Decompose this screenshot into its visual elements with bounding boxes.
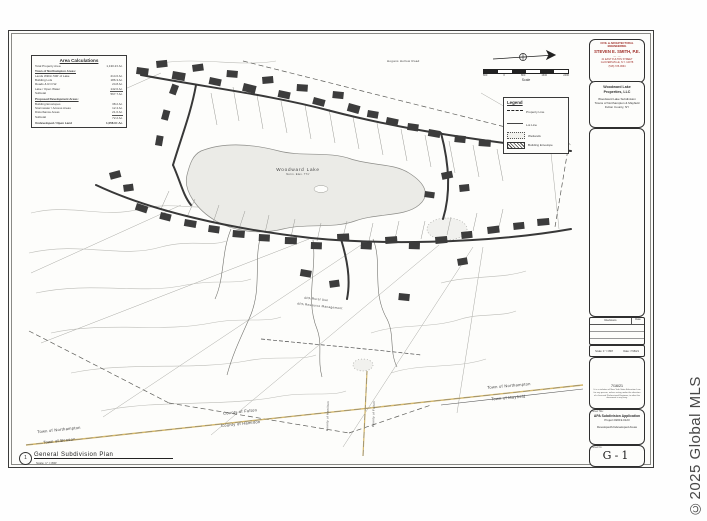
seal-box: 7/16/21 It is a violation of New York St… xyxy=(589,357,645,409)
area-calc-title: Area Calculations xyxy=(35,58,123,63)
notes-panel xyxy=(589,128,645,317)
area-calc-subtotal: Subtotal72.2 Ac. xyxy=(35,115,123,120)
drawing-sheet: Area Calculations Total Property Area1,1… xyxy=(8,30,654,468)
area-calc-total: Undeveloped / Open Land1,058.0± Ac. xyxy=(35,121,123,125)
sheet-title-box: Sheet Title: APA Subdivision Application… xyxy=(589,409,645,445)
lake-elevation-label: Norm. Elev. 771' xyxy=(253,172,343,176)
client-name: Woodward Lake Properties, LLC xyxy=(590,85,644,94)
mls-watermark: ©2025 Global MLS xyxy=(687,345,704,517)
engineer-stamp-box: CIVIL & ARCHITECTURAL ENGINEERING STEVEN… xyxy=(589,39,645,83)
sheet-title-line2: Project #2019-0123 xyxy=(590,418,644,422)
engineer-name: STEVEN E. SMITH, P.E. xyxy=(590,49,644,54)
sheet-title-label: Sheet Title: xyxy=(592,411,644,413)
date-field: Date: 7/16/21 xyxy=(623,350,639,353)
project-name: Woodward Lake Subdivision Towns of North… xyxy=(590,97,644,109)
road-label: Hogans Hollow Road xyxy=(387,59,420,63)
lot-line-symbol xyxy=(507,123,523,130)
property-line-symbol xyxy=(507,110,523,117)
legend-item: Lot Line xyxy=(507,120,565,130)
area-calc-subtotal: Subtotal567.7 Ac. xyxy=(35,91,123,96)
lake-shape xyxy=(186,145,467,371)
scale-bar-label: Scale xyxy=(483,78,569,82)
plan-title: General Subdivision Plan xyxy=(34,452,173,459)
revisions-header: Revisions Date xyxy=(590,318,644,325)
north-arrow-icon xyxy=(493,51,555,61)
sheet-title-line3: Developed/Undeveloped Areas xyxy=(590,425,644,429)
legend-box: Legend Property Line Lot Line Wetlands B… xyxy=(503,97,569,154)
survey-lines-layer xyxy=(31,73,571,447)
scale-field: Scale: 1" = 800' xyxy=(595,350,613,353)
area-calculations-box: Area Calculations Total Property Area1,1… xyxy=(31,55,127,128)
legend-item: Property Line xyxy=(507,107,565,117)
revisions-table: Revisions Date xyxy=(589,317,645,345)
sheet-number-box: Sheet No. G-1 xyxy=(589,445,645,467)
revision-row xyxy=(590,325,644,332)
firm-type: CIVIL & ARCHITECTURAL ENGINEERING xyxy=(590,42,644,48)
client-project-box: Woodward Lake Properties, LLC Woodward L… xyxy=(589,81,645,128)
scanned-subdivision-plan: Area Calculations Total Property Area1,1… xyxy=(0,0,707,521)
legend-item: Building Envelope xyxy=(507,142,565,149)
legend-title: Legend xyxy=(507,100,565,105)
sheet-number: G-1 xyxy=(590,449,644,462)
lake-label: Woodward Lake Norm. Elev. 771' xyxy=(253,167,343,176)
building-envelope-symbol xyxy=(507,142,525,149)
legend-item: Wetlands xyxy=(507,132,565,139)
wetlands-symbol xyxy=(507,132,525,139)
education-law-note: It is a violation of New York State Educ… xyxy=(590,388,644,401)
plan-scale: Scale: 1" = 800' xyxy=(36,461,57,465)
apa-zone-line xyxy=(261,339,421,355)
graphic-scale-bar: 8000 8001600 2400 Scale xyxy=(483,69,569,82)
revision-row xyxy=(590,332,644,339)
engineer-address: 41 EAST FULTON STREET GLOVERSVILLE, N.Y.… xyxy=(590,58,644,68)
scale-date-strip: Scale: 1" = 800' Date: 7/16/21 xyxy=(589,345,645,357)
plan-callout-number: 1 xyxy=(19,452,32,465)
area-calc-row: Total Property Area1,130.2± Ac. xyxy=(35,64,123,68)
